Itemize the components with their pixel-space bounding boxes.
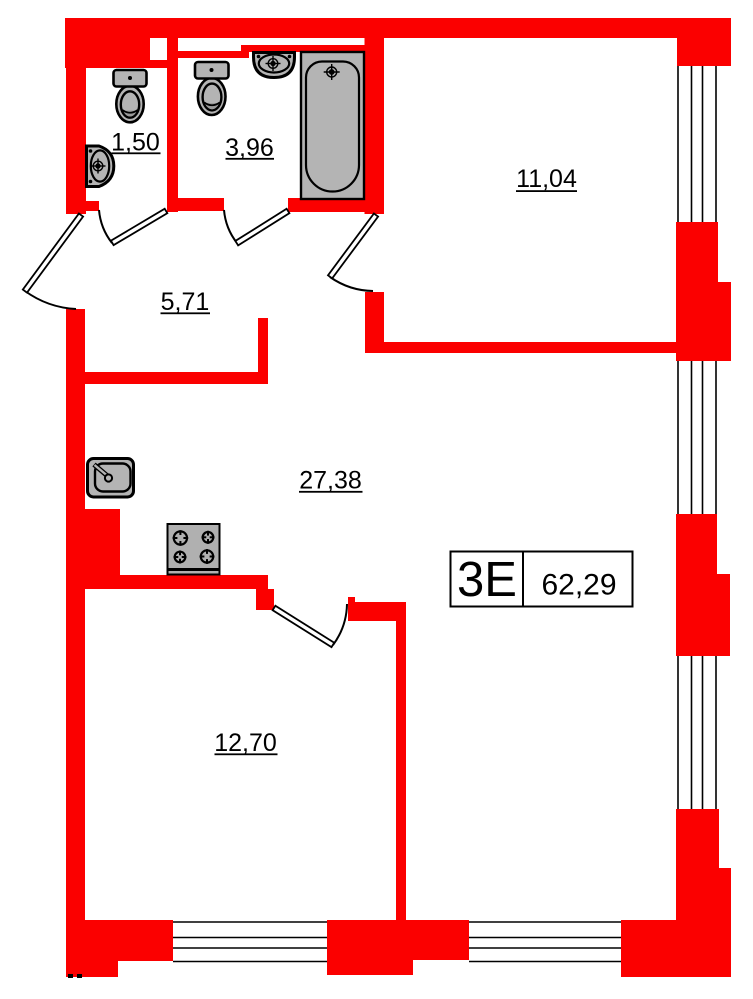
- svg-text:5,71: 5,71: [161, 288, 210, 316]
- svg-text:3,96: 3,96: [225, 134, 274, 162]
- svg-text:3Е: 3Е: [457, 553, 517, 607]
- svg-text:12,70: 12,70: [214, 729, 277, 757]
- svg-text:11,04: 11,04: [516, 165, 577, 193]
- svg-text:27,38: 27,38: [299, 467, 362, 495]
- svg-text:62,29: 62,29: [541, 569, 616, 602]
- svg-text:1,50: 1,50: [111, 129, 160, 157]
